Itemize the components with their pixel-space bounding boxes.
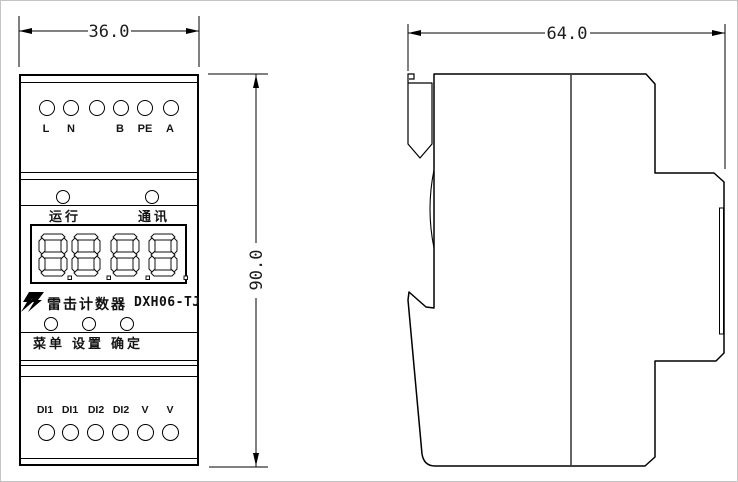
dim-value-height: 90.0 <box>247 250 267 291</box>
front-section-line <box>21 332 197 333</box>
side-view-body-outline <box>408 74 724 466</box>
confirm-button-hole <box>120 317 134 331</box>
run-led-label: 运行 <box>49 210 81 223</box>
front-section-line <box>21 205 197 206</box>
confirm-button-label: 确定 <box>111 337 143 350</box>
terminal-label-DI2: DI2 <box>113 405 129 416</box>
seven-segment-digits <box>30 224 190 284</box>
dim-arrow-left <box>408 30 421 36</box>
dim-arrow-right <box>712 30 725 36</box>
terminal-hole <box>38 424 55 441</box>
front-section-line <box>21 365 197 366</box>
model-number: DXH06-TJ <box>134 295 201 310</box>
terminal-hole <box>163 100 179 116</box>
front-section-line <box>21 172 197 173</box>
terminal-hole <box>89 100 105 116</box>
setting-button-label: 设置 <box>72 337 104 350</box>
dim-arrow-bottom <box>253 453 259 466</box>
terminal-label-DI1: DI1 <box>37 405 53 416</box>
menu-button-hole <box>44 317 58 331</box>
side-view-panel-lip <box>720 208 724 334</box>
terminal-label-V: V <box>166 405 173 416</box>
dim-value-front-width: 36.0 <box>89 22 130 42</box>
front-section-line <box>21 82 197 83</box>
run-led <box>56 190 70 204</box>
front-section-line <box>21 458 197 459</box>
terminal-label-DI1: DI1 <box>62 405 78 416</box>
terminal-hole <box>113 100 129 116</box>
front-section-line <box>21 179 197 180</box>
brand-name: 雷击计数器 <box>47 294 127 314</box>
setting-button-hole <box>82 317 96 331</box>
terminal-label-N: N <box>67 124 75 135</box>
terminal-hole <box>39 100 55 116</box>
terminal-label-A: A <box>166 124 174 135</box>
terminal-hole <box>162 424 179 441</box>
lightning-logo-icon <box>20 292 46 312</box>
terminal-hole <box>137 100 153 116</box>
menu-button-label: 菜单 <box>33 337 65 350</box>
terminal-hole <box>63 100 79 116</box>
brand-row: 雷击计数器 DXH06-TJ <box>20 292 198 312</box>
dim-arrow-left <box>19 28 32 34</box>
dim-arrow-top <box>253 75 259 88</box>
terminal-label-DI2: DI2 <box>88 405 104 416</box>
terminal-hole <box>87 424 104 441</box>
din-clip-top <box>408 83 432 158</box>
terminal-hole <box>137 424 154 441</box>
terminal-hole <box>62 424 79 441</box>
dim-value-side-depth: 64.0 <box>547 24 588 44</box>
front-section-line <box>21 360 197 361</box>
terminal-label-B: B <box>116 124 124 135</box>
terminal-label-L: L <box>43 124 50 135</box>
comm-led <box>145 190 159 204</box>
terminal-label-V: V <box>141 405 148 416</box>
din-clip-notch <box>408 74 414 83</box>
front-section-line <box>21 376 197 377</box>
comm-led-label: 通讯 <box>138 210 170 223</box>
dim-arrow-right <box>186 28 199 34</box>
terminal-label-PE: PE <box>138 124 153 135</box>
dimension-drawing: 36.0 64.0 90.0 <box>0 0 738 482</box>
terminal-hole <box>112 424 129 441</box>
